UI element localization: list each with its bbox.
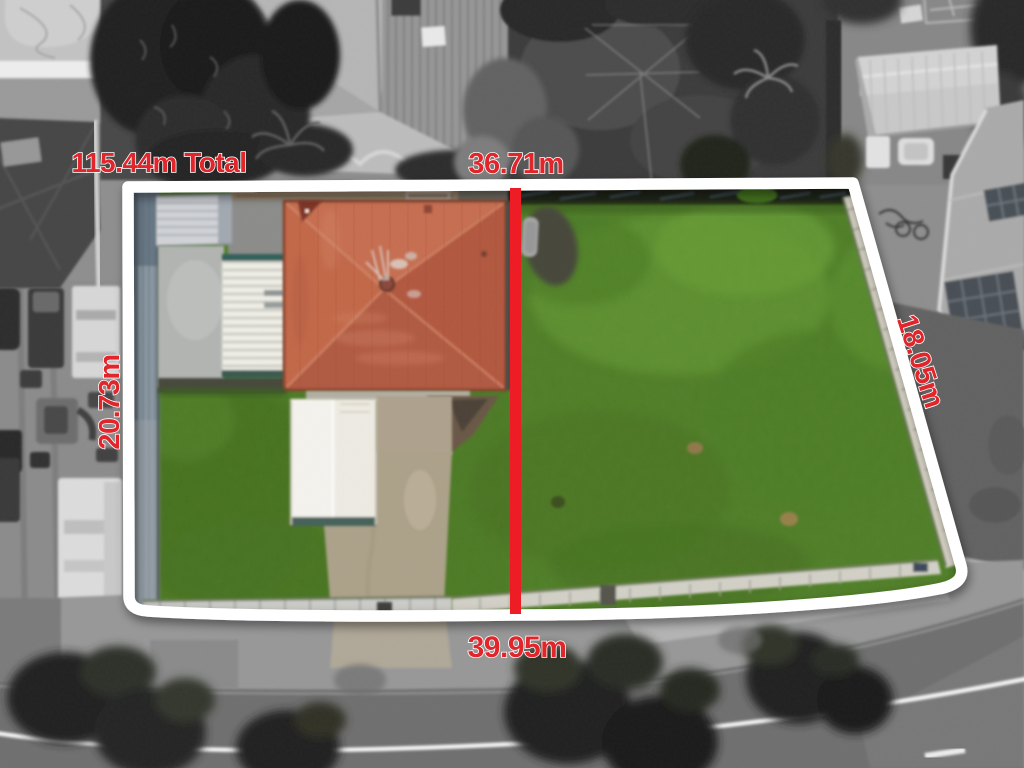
svg-text:20.73m: 20.73m [94,354,126,449]
svg-text:115.44m Total: 115.44m Total [71,147,246,178]
svg-text:39.95m: 39.95m [468,631,567,664]
svg-text:36.71m: 36.71m [468,148,563,180]
